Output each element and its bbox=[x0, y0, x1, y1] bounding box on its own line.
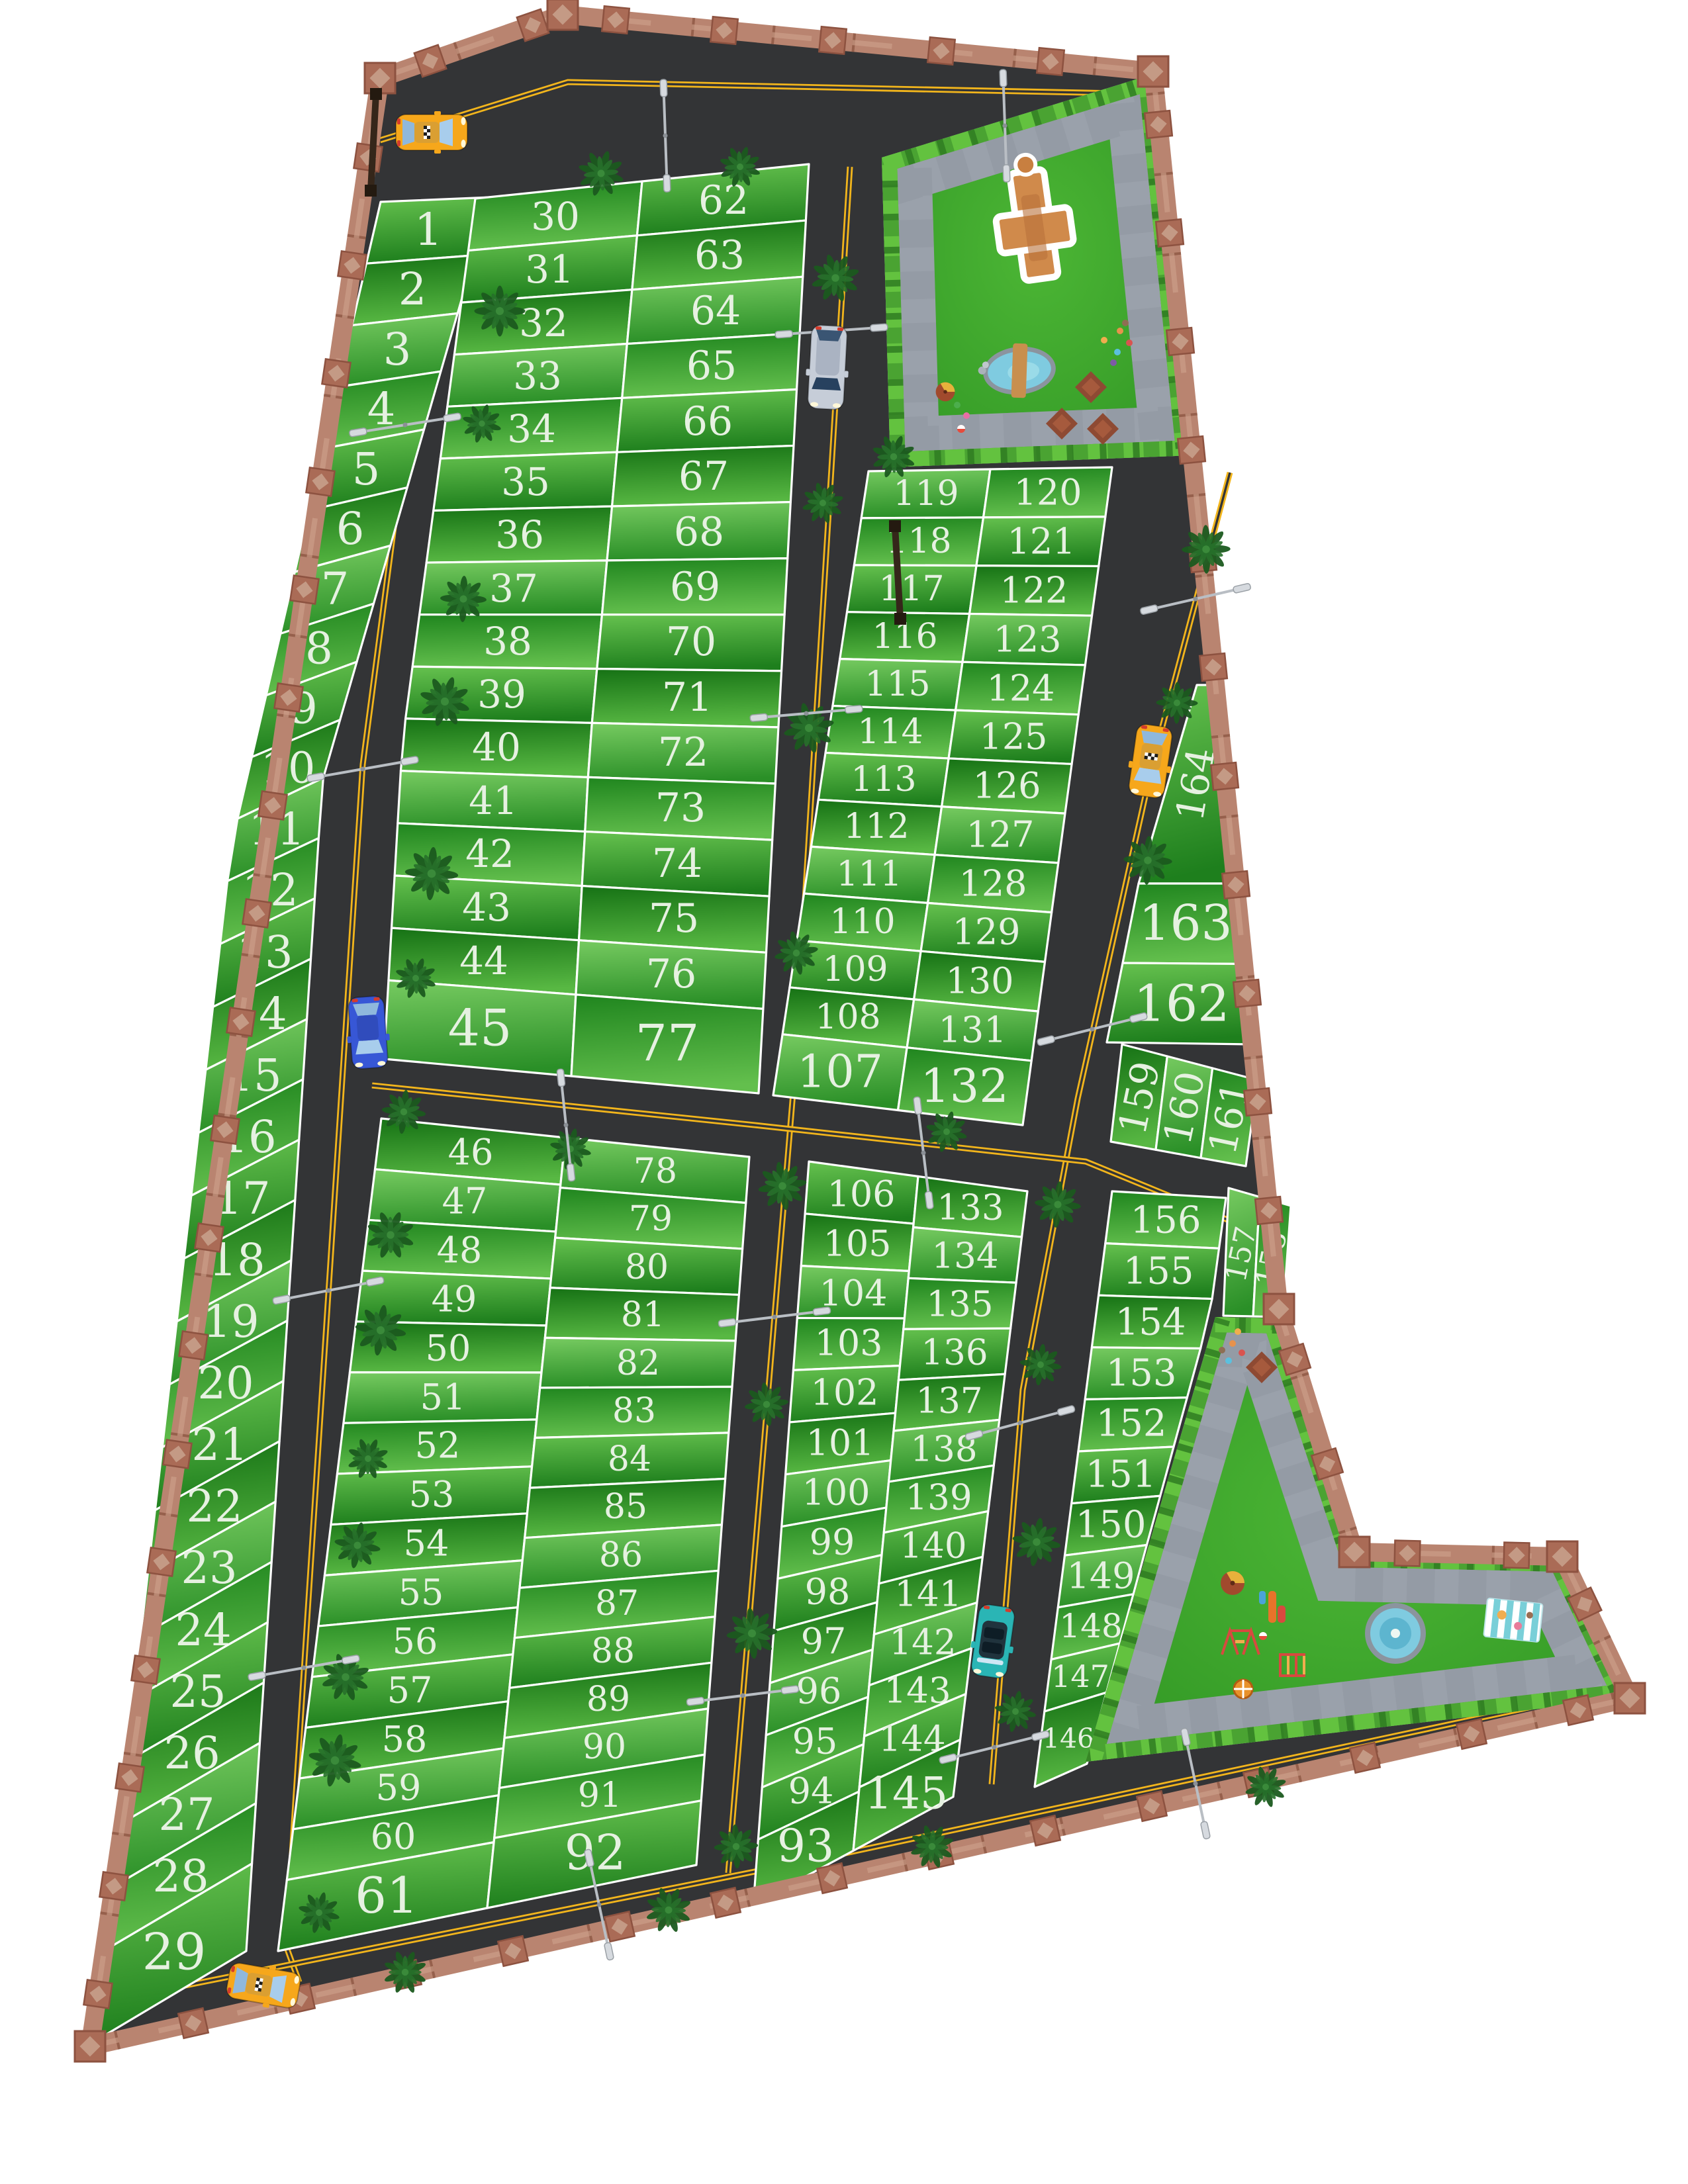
lot-83-label: 83 bbox=[612, 1391, 656, 1431]
lot-162-label: 162 bbox=[1133, 974, 1229, 1033]
lot-79-label: 79 bbox=[629, 1199, 673, 1239]
site-plan: 1234567891011121314151617181920212223242… bbox=[0, 0, 1688, 2184]
lot-101-label: 101 bbox=[806, 1422, 874, 1464]
lot-64-label: 64 bbox=[690, 288, 741, 334]
lot-81-label: 81 bbox=[621, 1295, 665, 1335]
car-van-silver bbox=[804, 324, 851, 410]
lot-126[interactable]: 126 bbox=[942, 758, 1072, 813]
lot-145-label: 145 bbox=[865, 1768, 948, 1819]
lot-76-label: 76 bbox=[646, 951, 696, 997]
lot-117[interactable]: 117 bbox=[847, 565, 977, 614]
lot-99-label: 99 bbox=[810, 1522, 855, 1563]
lot-117-label: 117 bbox=[878, 569, 944, 609]
lot-66[interactable]: 66 bbox=[617, 389, 796, 452]
lot-148-label: 148 bbox=[1059, 1607, 1122, 1645]
lot-93-label: 93 bbox=[777, 1821, 835, 1873]
lot-162[interactable]: 162 bbox=[1107, 963, 1252, 1044]
wall-pillar bbox=[1166, 328, 1194, 355]
lot-2-label: 2 bbox=[399, 263, 427, 315]
lot-97-label: 97 bbox=[801, 1621, 847, 1662]
lot-102-label: 102 bbox=[810, 1372, 878, 1414]
lot-123[interactable]: 123 bbox=[962, 614, 1092, 664]
lot-57-label: 57 bbox=[387, 1670, 433, 1711]
site-plan-map: 1234567891011121314151617181920212223242… bbox=[0, 0, 1688, 2184]
lot-131-label: 131 bbox=[938, 1009, 1006, 1051]
wall-corner-pillar bbox=[1264, 1294, 1294, 1324]
lot-127[interactable]: 127 bbox=[935, 807, 1065, 863]
wall-pillar bbox=[604, 1911, 634, 1941]
lot-94-label: 94 bbox=[788, 1770, 834, 1812]
lot-63-label: 63 bbox=[694, 232, 745, 279]
lot-83[interactable]: 83 bbox=[535, 1387, 732, 1437]
wall-corner-pillar bbox=[75, 2031, 105, 2062]
lot-80[interactable]: 80 bbox=[550, 1238, 743, 1295]
lot-152-label: 152 bbox=[1096, 1402, 1167, 1445]
lot-120-label: 120 bbox=[1013, 472, 1082, 514]
lot-47-label: 47 bbox=[442, 1181, 488, 1222]
lot-96-label: 96 bbox=[796, 1670, 842, 1712]
lot-41[interactable]: 41 bbox=[398, 771, 588, 832]
lot-3-label: 3 bbox=[383, 324, 412, 375]
lot-111-label: 111 bbox=[836, 854, 902, 894]
lot-34[interactable]: 34 bbox=[440, 398, 622, 459]
lot-50-label: 50 bbox=[426, 1328, 471, 1369]
lot-51-label: 51 bbox=[420, 1377, 466, 1418]
lot-123-label: 123 bbox=[993, 619, 1061, 660]
wall-pillar bbox=[163, 1439, 191, 1468]
wall-corner-pillar bbox=[1339, 1537, 1370, 1567]
wall-pillar bbox=[817, 1863, 847, 1893]
lot-74-label: 74 bbox=[652, 841, 702, 887]
wall-corner-pillar bbox=[1547, 1541, 1577, 1572]
lot-32-label: 32 bbox=[519, 300, 568, 345]
lot-55-label: 55 bbox=[399, 1572, 444, 1614]
lot-81[interactable]: 81 bbox=[545, 1288, 739, 1341]
lot-129-label: 129 bbox=[952, 911, 1020, 953]
lot-70[interactable]: 70 bbox=[597, 615, 784, 671]
lot-71-label: 71 bbox=[662, 674, 712, 721]
lot-35-label: 35 bbox=[501, 459, 550, 504]
lot-7-label: 7 bbox=[321, 563, 350, 615]
lot-77[interactable]: 77 bbox=[571, 995, 763, 1093]
lot-163-label: 163 bbox=[1139, 895, 1232, 952]
lot-34-label: 34 bbox=[507, 406, 556, 451]
wall-pillar bbox=[1233, 979, 1261, 1007]
wall-pillar bbox=[1563, 1695, 1593, 1725]
lot-103[interactable]: 103 bbox=[793, 1318, 904, 1370]
lot-65[interactable]: 65 bbox=[622, 333, 800, 398]
lot-125-label: 125 bbox=[979, 716, 1047, 758]
lot-37-label: 37 bbox=[489, 566, 538, 611]
lot-42-label: 42 bbox=[465, 831, 514, 876]
lot-58-label: 58 bbox=[382, 1719, 428, 1760]
lot-115[interactable]: 115 bbox=[833, 659, 962, 710]
lot-70-label: 70 bbox=[666, 619, 716, 665]
wall-pillar bbox=[1030, 1815, 1060, 1845]
lot-122[interactable]: 122 bbox=[970, 566, 1099, 616]
car-taxi-top bbox=[396, 111, 467, 154]
lot-100-label: 100 bbox=[802, 1472, 870, 1514]
lot-88-label: 88 bbox=[591, 1631, 635, 1671]
wall-pillar bbox=[1222, 871, 1250, 899]
lot-119-label: 119 bbox=[893, 474, 959, 514]
lot-72-label: 72 bbox=[658, 729, 708, 776]
wall-pillar bbox=[274, 683, 303, 711]
lot-136[interactable]: 136 bbox=[898, 1328, 1010, 1380]
lot-78-label: 78 bbox=[633, 1152, 677, 1191]
lot-39-label: 39 bbox=[477, 672, 526, 717]
lot-114[interactable]: 114 bbox=[825, 706, 956, 758]
wall-pillar bbox=[1395, 1541, 1421, 1567]
lot-60-label: 60 bbox=[371, 1816, 416, 1858]
lot-127-label: 127 bbox=[966, 814, 1034, 856]
wall-pillar bbox=[1456, 1719, 1486, 1749]
lot-151-label: 151 bbox=[1086, 1453, 1156, 1496]
lot-75-label: 75 bbox=[649, 895, 699, 942]
lot-153-label: 153 bbox=[1106, 1352, 1177, 1395]
wall-pillar bbox=[1145, 111, 1172, 138]
lot-135[interactable]: 135 bbox=[904, 1278, 1016, 1329]
palm-tree bbox=[475, 286, 526, 337]
lot-37[interactable]: 37 bbox=[420, 561, 607, 615]
wall-corner-pillar bbox=[1138, 56, 1168, 87]
lot-65-label: 65 bbox=[686, 343, 737, 389]
wall-corner-pillar bbox=[547, 0, 578, 30]
lot-43-label: 43 bbox=[462, 885, 511, 930]
lot-52-label: 52 bbox=[415, 1425, 461, 1467]
lot-67-label: 67 bbox=[679, 453, 729, 500]
wall-pillar bbox=[353, 143, 382, 171]
lot-118[interactable]: 118 bbox=[854, 518, 983, 566]
wall-pillar bbox=[211, 1115, 239, 1144]
lot-6-label: 6 bbox=[336, 503, 365, 555]
wall-pillar bbox=[1255, 1197, 1283, 1224]
lot-113[interactable]: 113 bbox=[818, 752, 949, 806]
lot-29-label: 29 bbox=[142, 1923, 207, 1981]
park-south-ball bbox=[1259, 1632, 1267, 1640]
lot-107-label: 107 bbox=[797, 1046, 883, 1099]
lot-36-label: 36 bbox=[495, 512, 544, 557]
lot-121-label: 121 bbox=[1007, 521, 1075, 563]
lot-126-label: 126 bbox=[972, 765, 1041, 807]
park-south-umbrella bbox=[1221, 1571, 1244, 1595]
lot-122-label: 122 bbox=[1000, 570, 1068, 612]
lot-114-label: 114 bbox=[857, 712, 923, 752]
wall-pillar bbox=[322, 359, 350, 387]
lot-45[interactable]: 45 bbox=[384, 980, 576, 1076]
wall-pillar bbox=[290, 575, 318, 604]
lot-106-label: 106 bbox=[827, 1173, 895, 1215]
lot-56-label: 56 bbox=[393, 1621, 438, 1662]
lot-77-label: 77 bbox=[635, 1014, 700, 1073]
wall-pillar bbox=[1211, 762, 1239, 790]
lot-124[interactable]: 124 bbox=[956, 662, 1086, 714]
park-south-pond2 bbox=[1365, 1603, 1426, 1664]
lot-66-label: 66 bbox=[682, 398, 733, 445]
lot-86-label: 86 bbox=[599, 1535, 643, 1575]
lot-140-label: 140 bbox=[900, 1526, 966, 1567]
lot-82-label: 82 bbox=[616, 1343, 660, 1383]
lot-119[interactable]: 119 bbox=[861, 469, 990, 518]
lot-35[interactable]: 35 bbox=[434, 452, 617, 510]
lot-40-label: 40 bbox=[472, 725, 521, 770]
lot-69[interactable]: 69 bbox=[602, 559, 787, 615]
lot-31-label: 31 bbox=[525, 247, 574, 292]
lot-146-label: 146 bbox=[1043, 1723, 1094, 1754]
lot-139-label: 139 bbox=[905, 1478, 972, 1518]
wall-pillar bbox=[226, 1007, 255, 1036]
lot-84-label: 84 bbox=[608, 1439, 651, 1479]
lot-98-label: 98 bbox=[805, 1571, 851, 1613]
lot-73-label: 73 bbox=[655, 785, 706, 831]
wall-pillar bbox=[602, 6, 629, 33]
lot-41-label: 41 bbox=[469, 778, 518, 823]
lot-45-label: 45 bbox=[448, 999, 512, 1058]
lot-82[interactable]: 82 bbox=[540, 1338, 736, 1388]
wall-pillar bbox=[306, 467, 334, 496]
lot-130-label: 130 bbox=[945, 960, 1013, 1002]
lot-154-label: 154 bbox=[1115, 1301, 1186, 1344]
lot-5-label: 5 bbox=[352, 443, 381, 495]
wall-pillar bbox=[819, 26, 846, 54]
lot-137-label: 137 bbox=[915, 1381, 982, 1422]
lot-110-label: 110 bbox=[829, 902, 895, 942]
lot-62-label: 62 bbox=[698, 177, 749, 224]
lot-156-label: 156 bbox=[1131, 1199, 1201, 1242]
lot-134[interactable]: 134 bbox=[908, 1227, 1021, 1283]
park-north-ball bbox=[957, 425, 965, 433]
lot-73[interactable]: 73 bbox=[585, 777, 776, 840]
lot-141-label: 141 bbox=[894, 1574, 961, 1615]
wall-pillar bbox=[242, 899, 271, 927]
lot-89-label: 89 bbox=[586, 1680, 630, 1719]
park-north-umbrella bbox=[936, 383, 955, 402]
lot-136-label: 136 bbox=[921, 1333, 988, 1373]
lot-40[interactable]: 40 bbox=[400, 719, 592, 778]
lot-105-label: 105 bbox=[823, 1223, 891, 1265]
lot-108-label: 108 bbox=[815, 997, 880, 1037]
lot-48-label: 48 bbox=[437, 1230, 483, 1271]
lot-128-label: 128 bbox=[959, 863, 1027, 905]
lot-90-label: 90 bbox=[583, 1727, 626, 1767]
lot-103-label: 103 bbox=[814, 1322, 882, 1364]
lot-153[interactable]: 153 bbox=[1085, 1347, 1201, 1400]
lot-54-label: 54 bbox=[404, 1523, 449, 1565]
wall-pillar bbox=[1137, 1791, 1166, 1821]
lot-33[interactable]: 33 bbox=[447, 344, 627, 407]
lot-72[interactable]: 72 bbox=[588, 723, 778, 784]
lot-67[interactable]: 67 bbox=[612, 445, 794, 506]
wall-pillar bbox=[710, 17, 737, 44]
wall-pillar bbox=[1350, 1743, 1380, 1772]
wall-pillar bbox=[115, 1763, 144, 1792]
lot-33-label: 33 bbox=[513, 353, 562, 398]
lot-44-label: 44 bbox=[459, 938, 508, 983]
car-sedan-blue bbox=[344, 995, 391, 1069]
lot-124-label: 124 bbox=[986, 668, 1055, 709]
wall-pillar bbox=[927, 37, 955, 64]
lot-49-label: 49 bbox=[432, 1279, 477, 1320]
wall-pillar bbox=[1504, 1543, 1530, 1569]
wall-pillar bbox=[338, 251, 366, 279]
lot-91-label: 91 bbox=[578, 1776, 622, 1815]
wall-pillar bbox=[195, 1223, 223, 1251]
lot-113-label: 113 bbox=[851, 760, 916, 799]
lot-112-label: 112 bbox=[843, 807, 909, 846]
wall-pillar bbox=[1156, 219, 1184, 247]
wall-pillar bbox=[99, 1872, 128, 1900]
lot-125[interactable]: 125 bbox=[949, 710, 1078, 764]
wall-pillar bbox=[1037, 48, 1064, 75]
lot-68[interactable]: 68 bbox=[607, 502, 790, 561]
lot-53-label: 53 bbox=[409, 1474, 455, 1516]
wall-pillar bbox=[179, 1331, 207, 1359]
wall-pillar bbox=[1244, 1088, 1272, 1116]
wall-pillar bbox=[147, 1547, 175, 1576]
park-south-blanket bbox=[1483, 1598, 1543, 1642]
lot-120[interactable]: 120 bbox=[984, 467, 1112, 518]
wall-pillar bbox=[258, 791, 287, 819]
lot-68-label: 68 bbox=[674, 509, 724, 555]
lot-135-label: 135 bbox=[926, 1285, 993, 1325]
lot-51[interactable]: 51 bbox=[344, 1373, 541, 1424]
lot-155-label: 155 bbox=[1123, 1250, 1194, 1293]
lot-154[interactable]: 154 bbox=[1092, 1295, 1212, 1348]
lot-121[interactable]: 121 bbox=[976, 517, 1105, 567]
wall-pillar bbox=[131, 1655, 160, 1684]
lot-59-label: 59 bbox=[376, 1767, 422, 1809]
lot-38-label: 38 bbox=[483, 619, 532, 664]
lot-149-label: 149 bbox=[1066, 1555, 1135, 1597]
lot-38[interactable]: 38 bbox=[412, 615, 602, 669]
wall-pillar bbox=[1178, 436, 1205, 464]
lot-30-label: 30 bbox=[531, 194, 580, 239]
lot-8-label: 8 bbox=[305, 623, 333, 674]
lot-156[interactable]: 156 bbox=[1105, 1191, 1226, 1248]
lot-152[interactable]: 152 bbox=[1078, 1398, 1187, 1451]
lot-69-label: 69 bbox=[670, 564, 720, 610]
lot-87-label: 87 bbox=[595, 1584, 639, 1623]
lot-109-label: 109 bbox=[822, 950, 888, 989]
wall-corner-pillar bbox=[1615, 1683, 1645, 1713]
lot-80-label: 80 bbox=[625, 1248, 669, 1287]
wall-pillar bbox=[83, 1979, 112, 2008]
lot-95-label: 95 bbox=[792, 1721, 838, 1762]
lot-150-label: 150 bbox=[1076, 1504, 1147, 1547]
wall-pillar bbox=[498, 1936, 528, 1966]
lot-36[interactable]: 36 bbox=[426, 506, 612, 563]
lot-155[interactable]: 155 bbox=[1099, 1244, 1219, 1299]
lot-112[interactable]: 112 bbox=[811, 799, 941, 854]
wall-pillar bbox=[1199, 653, 1227, 681]
lot-133-label: 133 bbox=[937, 1188, 1004, 1228]
lot-132-label: 132 bbox=[920, 1059, 1009, 1113]
wall-pillar bbox=[178, 2008, 208, 2038]
lot-134-label: 134 bbox=[931, 1236, 998, 1277]
lot-151[interactable]: 151 bbox=[1072, 1447, 1174, 1504]
lot-85-label: 85 bbox=[604, 1487, 647, 1527]
lot-61-label: 61 bbox=[355, 1866, 418, 1925]
lot-115-label: 115 bbox=[865, 664, 930, 704]
lot-1-label: 1 bbox=[414, 204, 443, 255]
wall-pillar bbox=[710, 1888, 740, 1917]
lot-147-label: 147 bbox=[1051, 1659, 1109, 1694]
lot-46-label: 46 bbox=[448, 1132, 494, 1173]
lot-105[interactable]: 105 bbox=[801, 1214, 914, 1271]
lot-92-label: 92 bbox=[565, 1825, 626, 1882]
park-south-merry bbox=[1234, 1680, 1252, 1698]
